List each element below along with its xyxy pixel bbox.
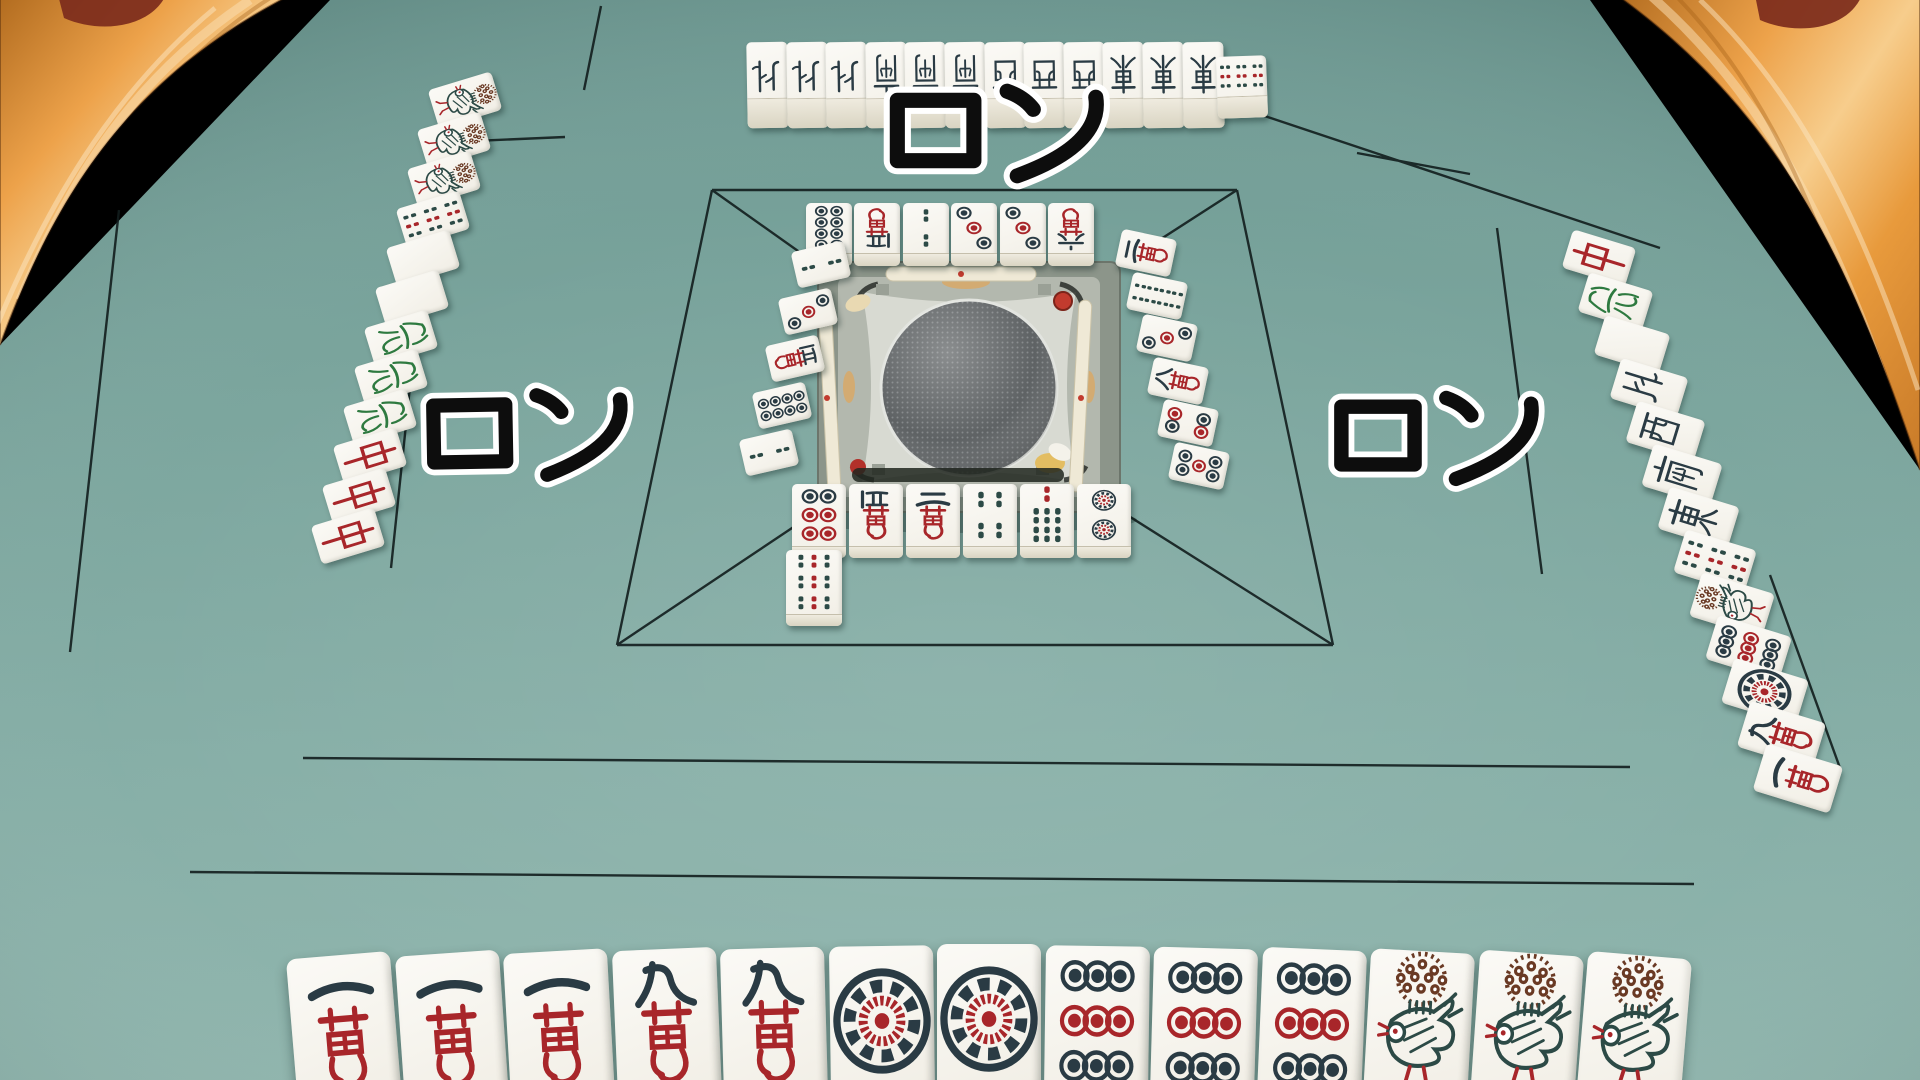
tile-7s	[1020, 484, 1074, 558]
tile-1m[interactable]	[503, 948, 615, 1080]
tile-1s[interactable]	[1576, 951, 1692, 1080]
tile-9p[interactable]	[1150, 946, 1258, 1080]
tile-2s	[739, 428, 800, 476]
tile-N	[786, 42, 828, 129]
tile-4p	[1157, 399, 1220, 448]
ron-call-top: ロン	[846, 64, 1132, 200]
tile-9s	[786, 550, 842, 626]
tile-2p	[1077, 484, 1131, 558]
tile-1m[interactable]	[286, 951, 402, 1080]
tile-6m	[1048, 203, 1094, 266]
tile-1m	[1753, 743, 1844, 813]
tile-2s	[903, 203, 949, 266]
tile-chun	[311, 507, 386, 565]
tile-9p[interactable]	[1256, 947, 1366, 1080]
ron-call-left: ロン	[393, 368, 647, 500]
tile-3p	[951, 203, 997, 266]
tile-5m	[765, 334, 826, 382]
tile-1p[interactable]	[937, 944, 1041, 1080]
tile-2m	[1115, 229, 1178, 278]
tile-8m	[1146, 356, 1209, 405]
tile-9m[interactable]	[720, 946, 828, 1080]
tile-2s	[791, 240, 852, 288]
tile-5m	[854, 203, 900, 266]
tile-3p	[1000, 203, 1046, 266]
tile-E	[1142, 42, 1184, 129]
tile-9p[interactable]	[1043, 945, 1149, 1080]
tile-3p	[778, 287, 839, 335]
tile-9m[interactable]	[611, 947, 721, 1080]
mahjong-table: ロン ロン ロン	[0, 0, 1920, 1080]
tile-1m[interactable]	[394, 950, 508, 1080]
tile-5p	[1167, 441, 1230, 490]
tile-1s[interactable]	[1363, 948, 1475, 1080]
tile-9s	[1216, 55, 1268, 119]
tile-1s[interactable]	[1469, 950, 1583, 1080]
tile-8s	[1125, 271, 1188, 320]
tile-1p[interactable]	[828, 945, 934, 1080]
tile-6p	[792, 484, 846, 558]
tile-N	[746, 42, 788, 129]
tile-2m	[906, 484, 960, 558]
tile-8p	[752, 381, 813, 429]
tile-3p	[1136, 314, 1199, 363]
tile-4s	[963, 484, 1017, 558]
ron-call-right: ロン	[1296, 372, 1562, 502]
tile-5m	[849, 484, 903, 558]
